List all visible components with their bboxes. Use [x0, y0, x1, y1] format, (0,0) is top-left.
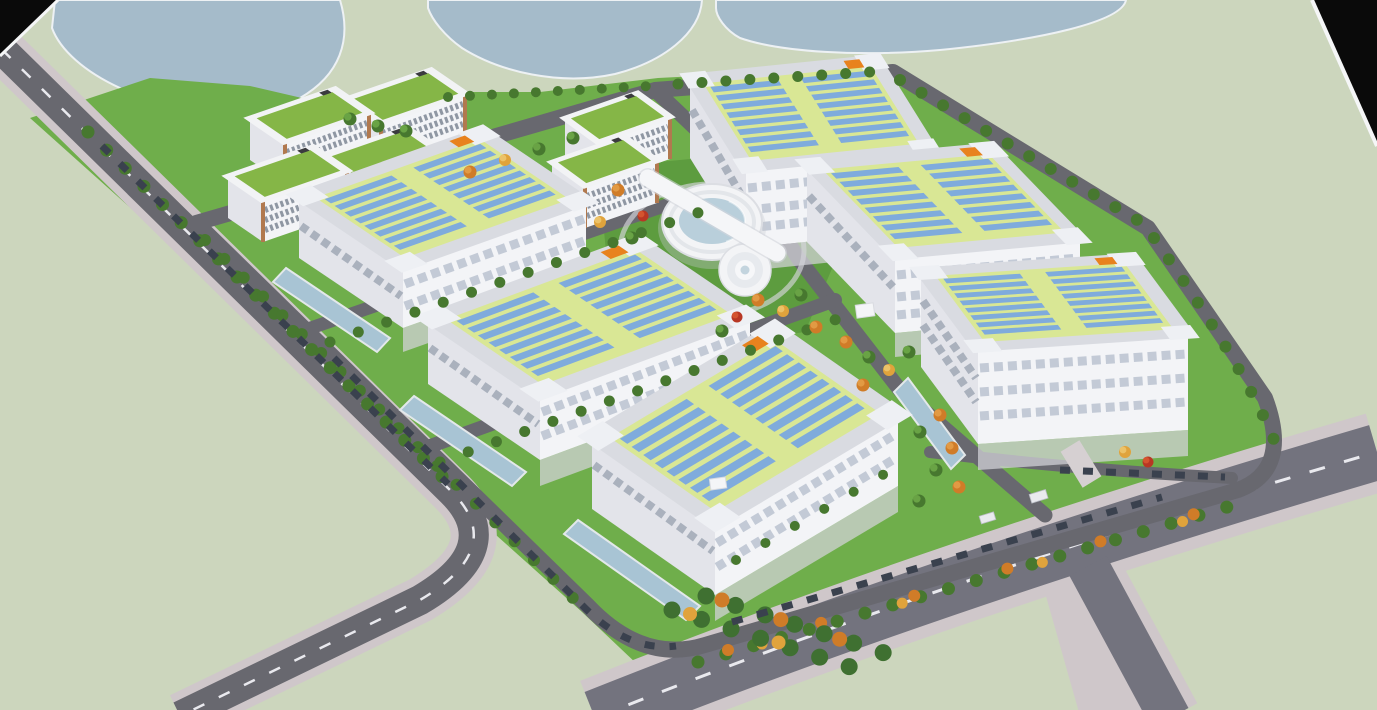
aerial-rendering-canvas	[0, 0, 1377, 710]
